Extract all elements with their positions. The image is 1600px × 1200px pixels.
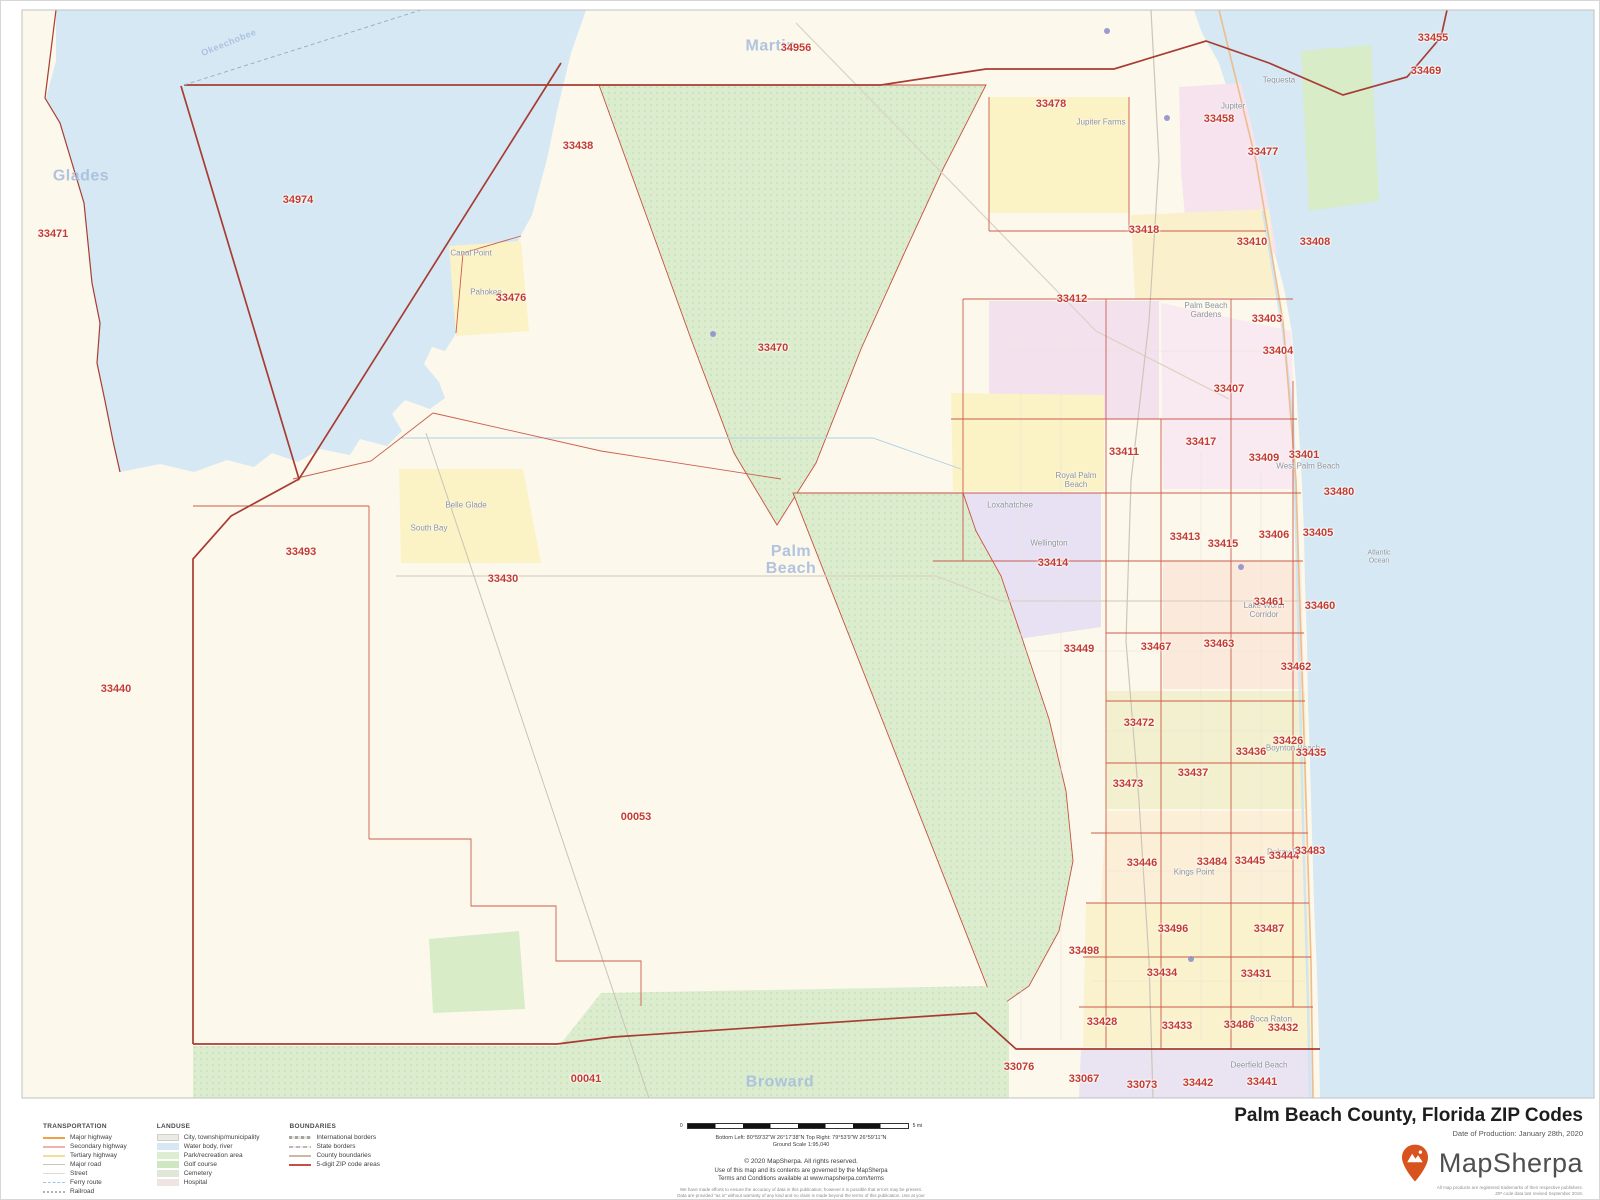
legend-item-label: 5-digit ZIP code areas <box>316 1161 379 1168</box>
legend-row: Water body, river <box>157 1143 260 1150</box>
legend-item-label: Water body, river <box>184 1143 233 1150</box>
legend-section-title: LANDUSE <box>157 1123 260 1130</box>
secondary-highway-swatch <box>43 1146 65 1148</box>
legend-item-label: Ferry route <box>70 1179 102 1186</box>
legend-item-label: Tertiary highway <box>70 1152 117 1159</box>
legend-row: City, township/municipality <box>157 1134 260 1141</box>
zip-swatch <box>289 1164 311 1166</box>
legend-item-label: Street <box>70 1170 87 1177</box>
legend-item-label: City, township/municipality <box>184 1134 260 1141</box>
ground-scale-text: Ground Scale 1:95,040 <box>641 1142 961 1148</box>
map-sheet: GladesOkeechobeeMartinPalm BeachBroward … <box>0 0 1600 1200</box>
legend-row: State borders <box>289 1143 379 1150</box>
legend-row: Hospital <box>157 1179 260 1186</box>
legend-item-label: Hospital <box>184 1179 207 1186</box>
legend-row: Tertiary highway <box>43 1152 127 1159</box>
legend-section-transportation: TRANSPORTATIONMajor highwaySecondary hig… <box>43 1123 127 1195</box>
legend-item-label: County boundaries <box>316 1152 371 1159</box>
map-canvas <box>1 1 1600 1200</box>
legend-section-title: BOUNDARIES <box>289 1123 379 1130</box>
legend-section-landuse: LANDUSECity, township/municipalityWater … <box>157 1123 260 1195</box>
legend-row: Street <box>43 1170 127 1177</box>
copyright-text: © 2020 MapSherpa. All rights reserved. <box>641 1158 961 1165</box>
credits-block: Bottom Left: 80°59'32"W 26°17'38"N Top R… <box>641 1135 961 1200</box>
legend-row: Railroad <box>43 1188 127 1195</box>
legend-section-boundaries: BOUNDARIESInternational bordersState bor… <box>289 1123 379 1195</box>
brand-name: MapSherpa <box>1439 1148 1583 1179</box>
legend-item-label: Cemetery <box>184 1170 212 1177</box>
legend-section-title: TRANSPORTATION <box>43 1123 127 1130</box>
scale-left-label: 0 <box>680 1123 683 1129</box>
legend-row: County boundaries <box>289 1152 379 1159</box>
legend-row: Golf course <box>157 1161 260 1168</box>
major-road-swatch <box>43 1164 65 1165</box>
legend: TRANSPORTATIONMajor highwaySecondary hig… <box>43 1123 380 1195</box>
railroad-swatch <box>43 1191 65 1193</box>
county-swatch <box>289 1155 311 1157</box>
legend-row: International borders <box>289 1134 379 1141</box>
park-swatch <box>157 1152 179 1159</box>
legend-row: 5-digit ZIP code areas <box>289 1161 379 1168</box>
terms-line-1: Use of this map and its contents are gov… <box>641 1168 961 1176</box>
legend-row: Major highway <box>43 1134 127 1141</box>
legend-item-label: Park/recreation area <box>184 1152 243 1159</box>
scale-bar: 0 5 mi <box>661 1123 941 1129</box>
legend-item-label: Major highway <box>70 1134 112 1141</box>
water-swatch <box>157 1143 179 1150</box>
legend-item-label: Golf course <box>184 1161 217 1168</box>
legend-item-label: State borders <box>316 1143 355 1150</box>
golf-swatch <box>157 1161 179 1168</box>
legend-item-label: Secondary highway <box>70 1143 127 1150</box>
international-swatch <box>289 1136 311 1139</box>
state-swatch <box>289 1146 311 1148</box>
production-date: Date of Production: January 28th, 2020 <box>1163 1129 1583 1138</box>
city-swatch <box>157 1134 179 1141</box>
legend-row: Major road <box>43 1161 127 1168</box>
legend-item-label: Major road <box>70 1161 101 1168</box>
terms-line-2: Terms and Conditions available at www.ma… <box>641 1176 961 1184</box>
street-swatch <box>43 1173 65 1174</box>
scale-right-label: 5 mi <box>913 1123 922 1129</box>
map-extent-text: Bottom Left: 80°59'32"W 26°17'38"N Top R… <box>641 1135 961 1141</box>
legend-row: Ferry route <box>43 1179 127 1186</box>
map-title: Palm Beach County, Florida ZIP Codes <box>1163 1105 1583 1127</box>
legend-row: Cemetery <box>157 1170 260 1177</box>
legend-row: Park/recreation area <box>157 1152 260 1159</box>
ferry-route-swatch <box>43 1182 65 1183</box>
major-highway-swatch <box>43 1137 65 1139</box>
mapsherpa-pin-icon <box>1398 1143 1432 1183</box>
legend-item-label: Railroad <box>70 1188 94 1195</box>
title-block: Palm Beach County, Florida ZIP Codes Dat… <box>1163 1105 1583 1200</box>
scale-bar-graphic <box>687 1123 909 1129</box>
hospital-swatch <box>157 1179 179 1186</box>
tertiary-highway-swatch <box>43 1155 65 1157</box>
disclaimer-text: We have made efforts to ensure the accur… <box>676 1187 926 1200</box>
cemetery-swatch <box>157 1170 179 1177</box>
legend-item-label: International borders <box>316 1134 376 1141</box>
legend-row: Secondary highway <box>43 1143 127 1150</box>
fine-print-2: ZIP code data last revised September 201… <box>1163 1191 1583 1197</box>
